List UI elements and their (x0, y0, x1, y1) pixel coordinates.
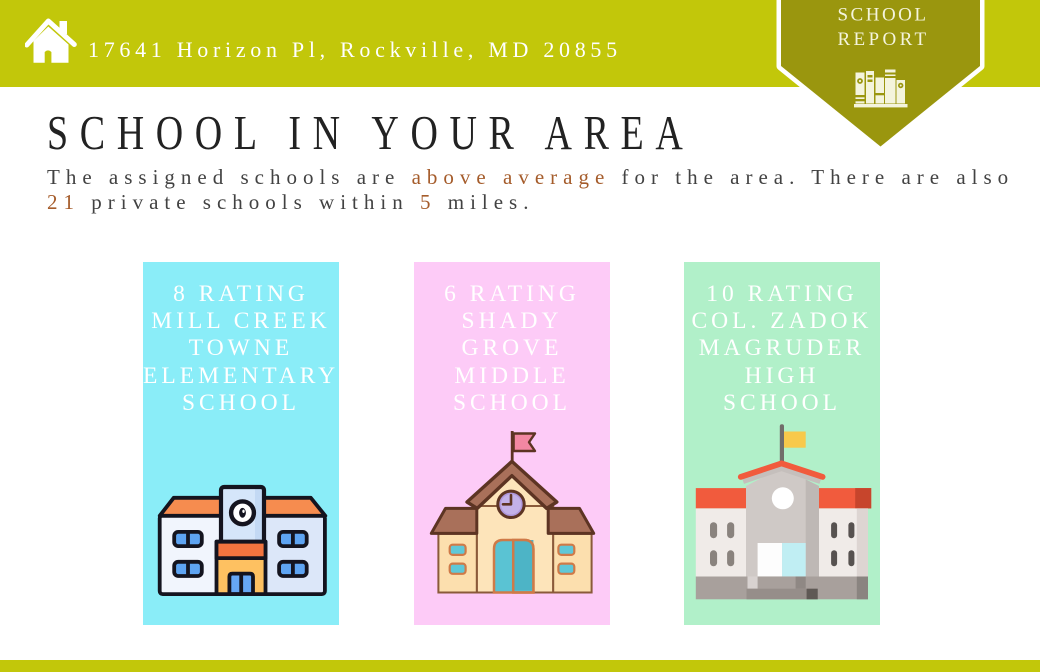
svg-text:REPORT: REPORT (837, 29, 929, 50)
svg-text:SCHOOL: SCHOOL (837, 5, 928, 26)
